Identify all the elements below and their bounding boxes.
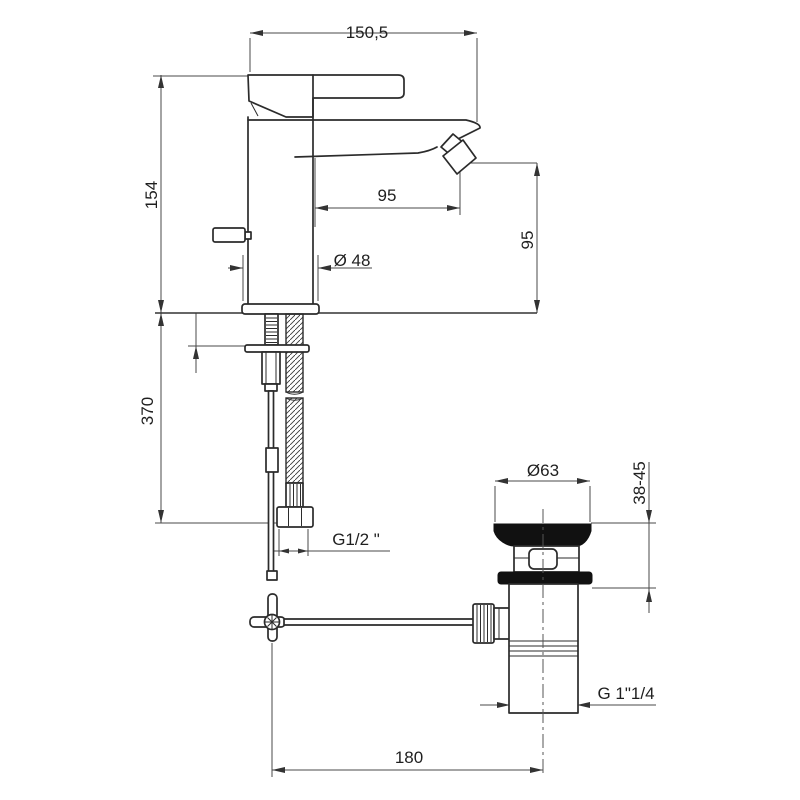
pull-rod-collar: [266, 448, 278, 472]
dimension-mounting-thickness-range: 38-45: [591, 461, 656, 613]
dimension-rod-to-waste: 180: [272, 643, 543, 777]
dimension-spout-reach: 95: [315, 158, 460, 227]
rod-clamp-knob: [473, 604, 511, 643]
aerator: [441, 134, 476, 174]
faucet-technical-drawing: 150,5 154 370 95 Ø 48 95 G1: [0, 0, 800, 800]
mounting-cartridge: [262, 352, 280, 391]
faucet-mixer: [213, 75, 480, 314]
pull-rod: [266, 391, 278, 580]
dimension-body-height: 154: [142, 75, 248, 313]
label-supply-thread: G1/2 ": [332, 530, 380, 549]
lever-handle: [248, 75, 404, 117]
dimension-supply-thread: G1/2 ": [272, 529, 390, 556]
clamping-washer: [245, 345, 309, 352]
popup-knob: [213, 228, 251, 242]
pull-rod-tip: [267, 571, 277, 580]
technical-drawing-page: 150,5 154 370 95 Ø 48 95 G1: [0, 0, 800, 800]
base-plate: [242, 304, 319, 314]
label-spout-reach: 95: [378, 186, 397, 205]
counter-reference-tick: [188, 313, 245, 373]
label-under-counter-length: 370: [138, 397, 157, 425]
label-rod-to-waste: 180: [395, 748, 423, 767]
threaded-stud: [265, 314, 278, 345]
popup-waste: [494, 509, 592, 777]
dimension-spout-height: 95: [468, 163, 540, 313]
label-waste-thread: G 1"1/4: [597, 684, 654, 703]
popup-linkage: [250, 594, 511, 643]
waste-gasket: [498, 572, 592, 584]
label-mounting-thickness-range: 38-45: [630, 461, 649, 504]
label-spout-height: 95: [518, 231, 537, 250]
label-base-diameter: Ø 48: [334, 251, 371, 270]
label-body-height: 154: [142, 181, 161, 209]
label-spout-width-top: 150,5: [346, 23, 389, 42]
dimension-base-diameter: Ø 48: [228, 251, 372, 301]
hose-hex-nut: [277, 507, 313, 527]
label-waste-flange-diameter: Ø63: [527, 461, 559, 480]
horizontal-rod: [284, 619, 474, 625]
